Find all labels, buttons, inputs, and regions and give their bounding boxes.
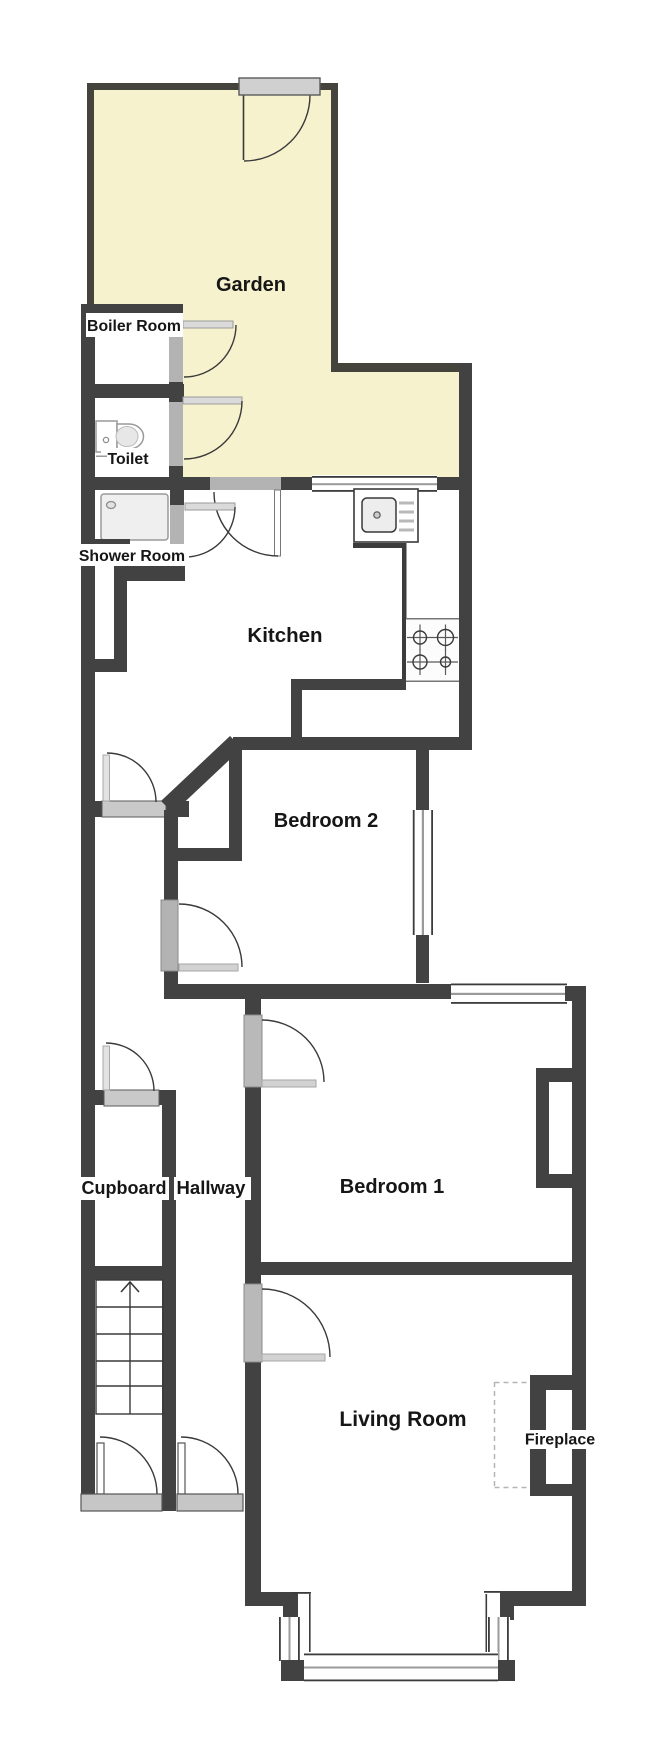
svg-text:Bedroom 2: Bedroom 2	[274, 810, 378, 832]
svg-text:Boiler Room: Boiler Room	[87, 318, 181, 335]
svg-text:Shower Room: Shower Room	[79, 548, 185, 565]
svg-text:Kitchen: Kitchen	[247, 624, 322, 647]
svg-text:Bedroom 1: Bedroom 1	[340, 1176, 444, 1198]
svg-text:Cupboard: Cupboard	[82, 1178, 167, 1198]
svg-text:Toilet: Toilet	[108, 451, 150, 468]
svg-text:Living Room: Living Room	[339, 1408, 466, 1431]
svg-text:Hallway: Hallway	[177, 1177, 247, 1198]
svg-text:Fireplace: Fireplace	[525, 1432, 595, 1449]
svg-text:Garden: Garden	[216, 274, 286, 296]
